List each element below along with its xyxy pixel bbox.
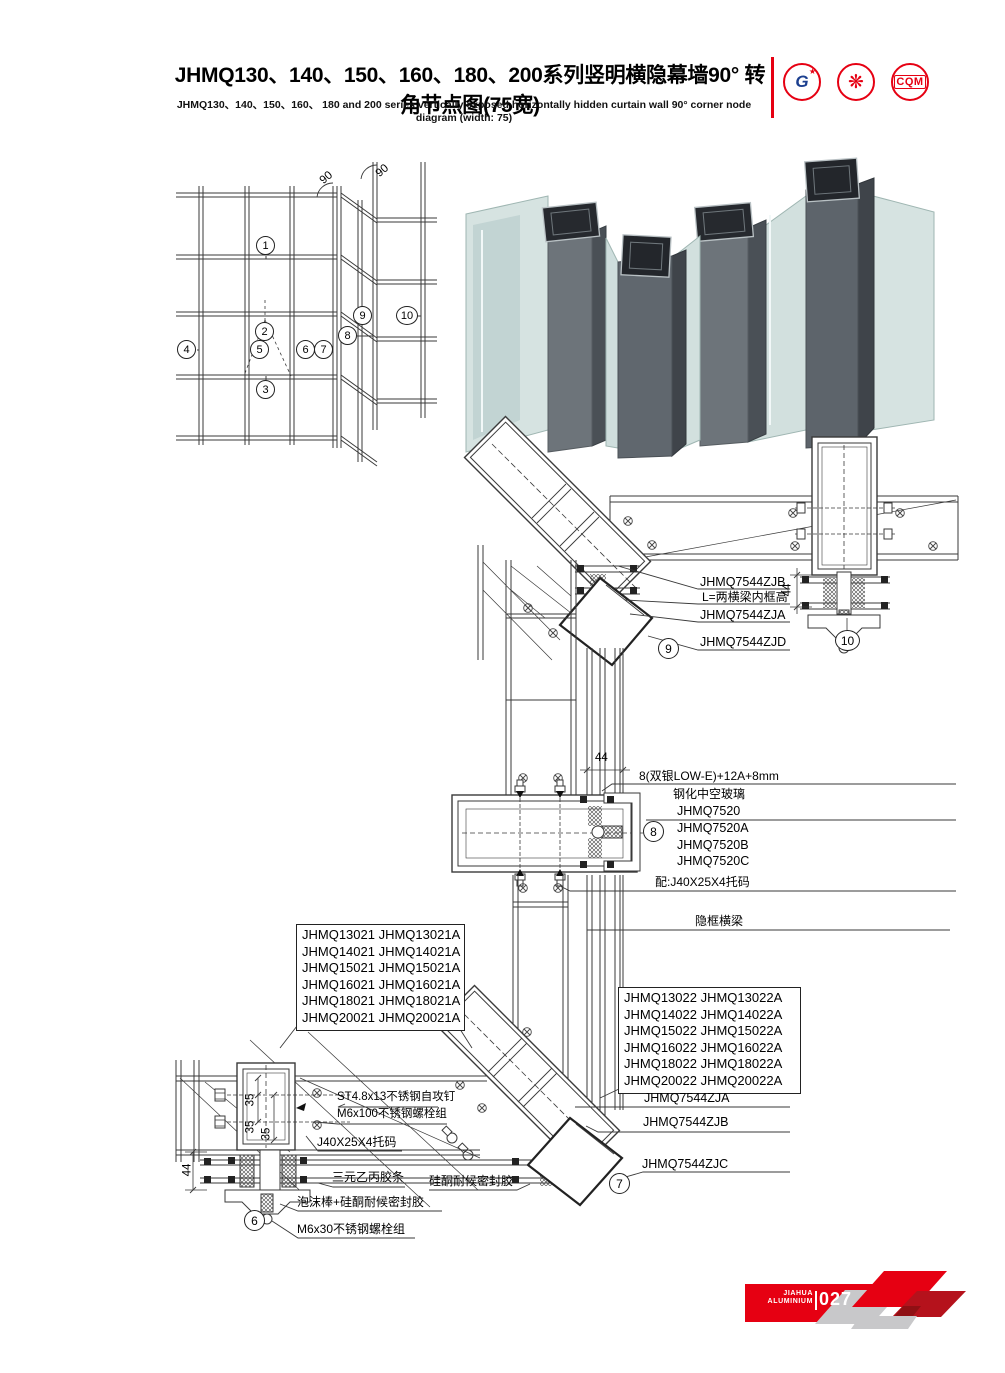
glass-type-label: 钢化中空玻璃: [673, 788, 745, 801]
part-row: JHMQ13021 JHMQ13021A: [302, 927, 464, 944]
part-row: JHMQ15021 JHMQ15021A: [302, 960, 464, 977]
part-label-zjb-7: JHMQ7544ZJB: [643, 1116, 728, 1129]
detail-callout-6: 6: [244, 1210, 265, 1231]
dim-35-a: 35: [244, 1094, 256, 1107]
cqm-certification-icon: CQM: [891, 63, 929, 101]
elevation-callout-3: 3: [256, 380, 275, 399]
bolt30-label: M6x30不锈钢螺栓组: [297, 1223, 405, 1236]
brand-line-2: ALUMINIUM: [760, 1298, 813, 1305]
part-label-7520a: JHMQ7520A: [677, 822, 749, 835]
elevation-callout-7: 7: [314, 340, 333, 359]
detail-9-10-section: [465, 417, 959, 666]
foam-label: 泡沫棒+硅酮耐候密封胶: [297, 1196, 424, 1209]
dim-35-b: 35: [244, 1121, 256, 1134]
dim-44-bottom: 44: [181, 1164, 193, 1177]
part-label-zjc-7: JHMQ7544ZJC: [642, 1158, 728, 1171]
gb-certification-icon: G ★: [783, 63, 821, 101]
part-row: JHMQ20021 JHMQ20021A: [302, 1010, 464, 1027]
part-row: JHMQ16021 JHMQ16021A: [302, 977, 464, 994]
brand-line-1: JIAHUA: [767, 1290, 813, 1297]
bracket-note-label: 配:J40X25X4托码: [655, 876, 750, 889]
technical-line-art: [0, 0, 1005, 1373]
dim-44-top: 44: [781, 584, 793, 597]
bracket6-label: J40X25X4托码: [317, 1136, 396, 1149]
part-row: JHMQ14022 JHMQ14022A: [624, 1007, 800, 1024]
part-label-zjb: JHMQ7544ZJB: [700, 576, 785, 589]
flower-seal-icon: ❋: [837, 63, 875, 101]
part-row: JHMQ18021 JHMQ18021A: [302, 993, 464, 1010]
elevation-callout-2: 2: [255, 322, 274, 341]
detail-callout-9: 9: [658, 638, 679, 659]
detail-callout-10: 10: [835, 630, 860, 651]
detail-callout-7: 7: [609, 1173, 630, 1194]
part-row: JHMQ16022 JHMQ16022A: [624, 1040, 800, 1057]
catalog-page: JHMQ130、140、150、160、180、200系列竖明横隐幕墙90° 转…: [0, 0, 1005, 1373]
footer-divider: [815, 1291, 817, 1310]
part-row: JHMQ20022 JHMQ20022A: [624, 1073, 800, 1090]
glass-spec-label: 8(双银LOW-E)+12A+8mm: [639, 770, 779, 783]
elevation-callout-1: 1: [256, 236, 275, 255]
part-row: JHMQ18022 JHMQ18022A: [624, 1056, 800, 1073]
part-number-block-right: JHMQ13022 JHMQ13022A JHMQ14022 JHMQ14022…: [618, 987, 801, 1094]
part-label-7520: JHMQ7520: [677, 805, 740, 818]
render-3d: [466, 158, 934, 458]
part-row: JHMQ15022 JHMQ15022A: [624, 1023, 800, 1040]
part-label-7520c: JHMQ7520C: [677, 855, 749, 868]
elevation-callout-4: 4: [177, 340, 196, 359]
part-row: JHMQ14021 JHMQ14021A: [302, 944, 464, 961]
elevation-callout-5: 5: [250, 340, 269, 359]
note-inner-frame-height: L=两横梁内框高: [702, 591, 788, 604]
page-subtitle: JHMQ130、140、150、160、 180 and 200 series …: [158, 97, 770, 124]
screw-label: ST4.8x13不锈钢自攻钉: [337, 1091, 455, 1103]
page-number: 027: [819, 1289, 852, 1310]
elevation-callout-8: 8: [338, 326, 357, 345]
part-number-block-left: JHMQ13021 JHMQ13021A JHMQ14021 JHMQ14021…: [296, 924, 465, 1031]
bolt100-label: M6x100不锈钢螺栓组: [337, 1108, 447, 1120]
detail-callout-8: 8: [643, 821, 664, 842]
part-row: JHMQ13022 JHMQ13022A: [624, 990, 800, 1007]
hidden-beam-label: 隐框横梁: [695, 915, 743, 928]
gasket-label: 三元乙丙胶条: [332, 1171, 404, 1184]
elevation-callout-6: 6: [296, 340, 315, 359]
sealant-label: 硅酮耐候密封胶: [429, 1175, 513, 1188]
detail-6-section: [176, 1060, 530, 1238]
header-divider: [771, 57, 774, 118]
dim-44-glass: 44: [595, 752, 608, 764]
elevation-callout-10: 10: [396, 306, 418, 325]
dim-35-c: 35: [260, 1128, 272, 1141]
part-label-zjd: JHMQ7544ZJD: [700, 636, 786, 649]
part-label-zja: JHMQ7544ZJA: [700, 609, 785, 622]
part-label-7520b: JHMQ7520B: [677, 839, 749, 852]
part-label-zja-7: JHMQ7544ZJA: [644, 1092, 729, 1105]
elevation-callout-9: 9: [353, 306, 372, 325]
